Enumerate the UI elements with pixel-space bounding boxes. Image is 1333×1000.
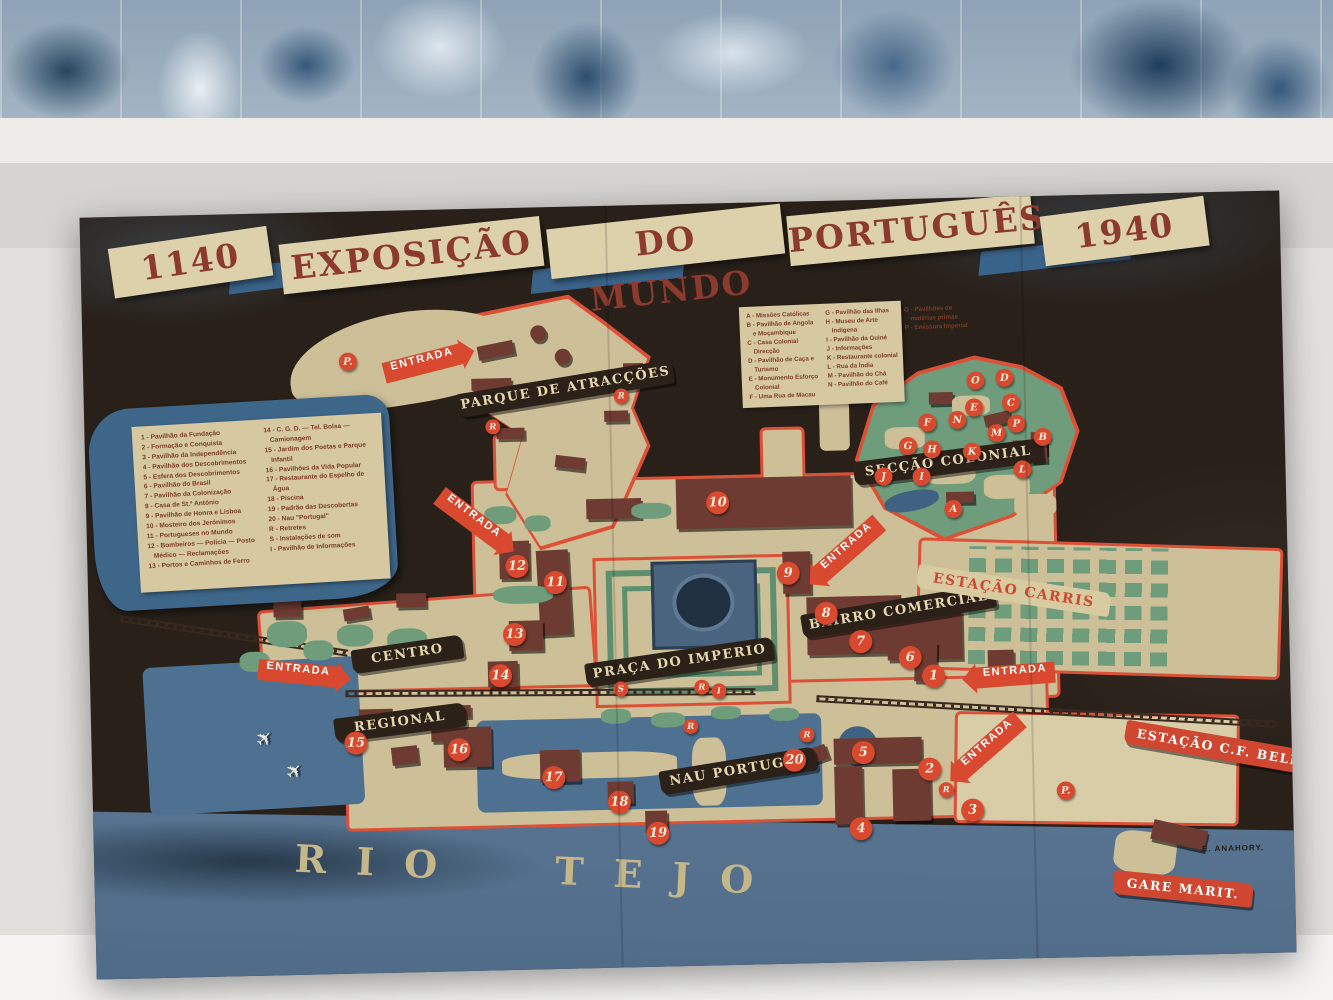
- dock-basin-nau: [476, 713, 823, 813]
- seaplane-icon: ✈: [252, 726, 278, 752]
- legend-item: N - Pavilhão do Café: [828, 379, 899, 391]
- fountain-circle: [672, 573, 735, 632]
- dock-basin-west: ✈ ✈: [142, 656, 365, 816]
- legend-item: F - Uma Rua de Macau: [749, 391, 820, 403]
- title-word-exposicao: EXPOSIÇÃO: [278, 216, 544, 294]
- museum-photo: ✈ ✈: [0, 0, 1333, 1000]
- exposition-map-poster: ✈ ✈: [80, 190, 1297, 979]
- seaplane-icon: ✈: [282, 759, 308, 785]
- gare-pier: [1112, 828, 1178, 877]
- garden-grid: [968, 546, 1174, 666]
- pier: [691, 737, 727, 806]
- parking-lot: [954, 711, 1240, 826]
- legend-lettered-panel: A - Missões CatólicasB - Pavilhão de Ang…: [739, 301, 905, 408]
- artist-signature: E. ANAHORY.: [1202, 843, 1264, 853]
- praca-do-imperio-square: [592, 554, 791, 708]
- map-pier-north: [759, 426, 805, 489]
- pier: [502, 750, 678, 780]
- title-word-do-mundo: DO MUNDO: [546, 204, 785, 279]
- tower-shape: [819, 400, 850, 451]
- legend-numbered-panel: 1 - Pavilhão da Fundação2 - Formação e C…: [131, 413, 390, 593]
- fountain-pool: [650, 559, 758, 649]
- legend-item: P - Emissora Imperial: [905, 322, 976, 334]
- title-year-right: 1940: [1040, 196, 1210, 267]
- azulejo-tile-mural: [0, 0, 1333, 122]
